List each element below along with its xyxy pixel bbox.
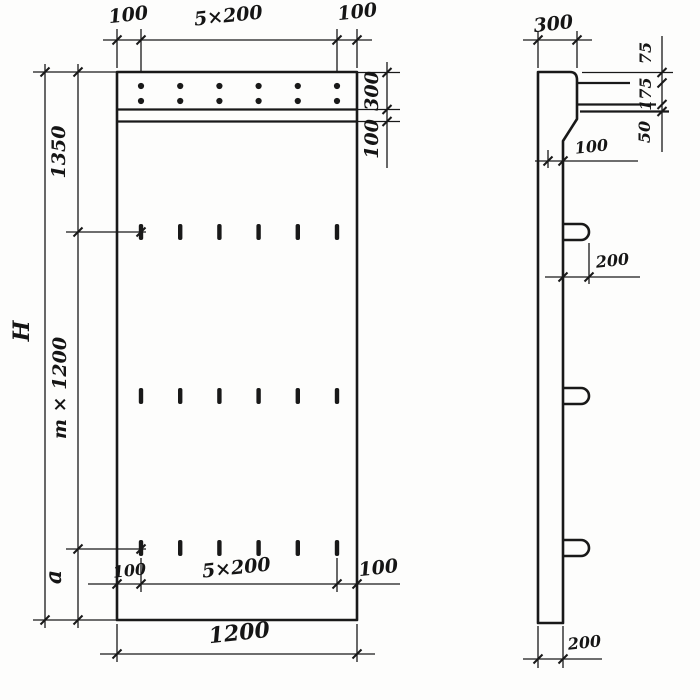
dim-step-100: 100 (574, 135, 609, 157)
side-top-dimension: 300 (523, 11, 592, 68)
dim-top-right-100: 100 (336, 0, 378, 25)
lifting-hook-middle (563, 388, 589, 404)
dim-band-300: 300 (361, 71, 383, 111)
front-left-dimension: H 1350 m × 1200 a (9, 64, 146, 628)
slot-row-lower (139, 540, 339, 556)
panel-outline (117, 72, 357, 620)
dim-strip-100: 100 (361, 119, 383, 159)
side-hook-dimension: 200 (545, 243, 640, 284)
dim-a: a (41, 570, 67, 584)
dim-ledge-175: 175 (636, 77, 655, 110)
anchor-dots (138, 83, 340, 104)
side-step-dimension: 100 (535, 135, 638, 168)
dim-hook-200: 200 (594, 249, 630, 271)
dim-m-1200: m × 1200 (49, 337, 71, 439)
front-right-dimension: 300 100 (357, 62, 400, 168)
dim-top-pitch: 5×200 (193, 1, 264, 30)
dim-total-height-H: H (9, 319, 35, 342)
dim-width-1200: 1200 (207, 617, 271, 649)
side-right-dimension: 75 175 50 (582, 36, 673, 152)
side-bottom-dimension: 200 (523, 626, 602, 668)
panel-working-drawing: 100 5×200 100 300 100 H 135 (0, 0, 700, 700)
front-top-dimension: 100 5×200 100 (103, 0, 378, 72)
dim-bottom-left-100: 100 (112, 559, 147, 581)
dim-bottom-pitch: 5×200 (201, 553, 272, 582)
front-bottom-inner-dimension: 100 5×200 100 (88, 553, 400, 592)
front-width-dimension: 1200 (100, 617, 375, 662)
dim-1350: 1350 (48, 126, 70, 179)
dim-ledge-50: 50 (635, 121, 654, 143)
lifting-hook-lower (563, 540, 589, 556)
dim-side-bottom-200: 200 (566, 631, 602, 653)
side-view: 300 75 175 50 100 200 (523, 11, 673, 668)
dim-ledge-75: 75 (636, 42, 655, 64)
dim-top-left-100: 100 (107, 2, 149, 28)
slot-row-upper (139, 224, 339, 240)
dim-side-top-300: 300 (532, 11, 574, 37)
dim-bottom-right-100: 100 (357, 555, 399, 581)
slot-row-middle (139, 388, 339, 404)
lifting-hook-upper (563, 224, 589, 240)
technical-drawing-sheet: 100 5×200 100 300 100 H 135 (0, 0, 700, 700)
front-view: 100 5×200 100 300 100 H 135 (9, 0, 400, 662)
